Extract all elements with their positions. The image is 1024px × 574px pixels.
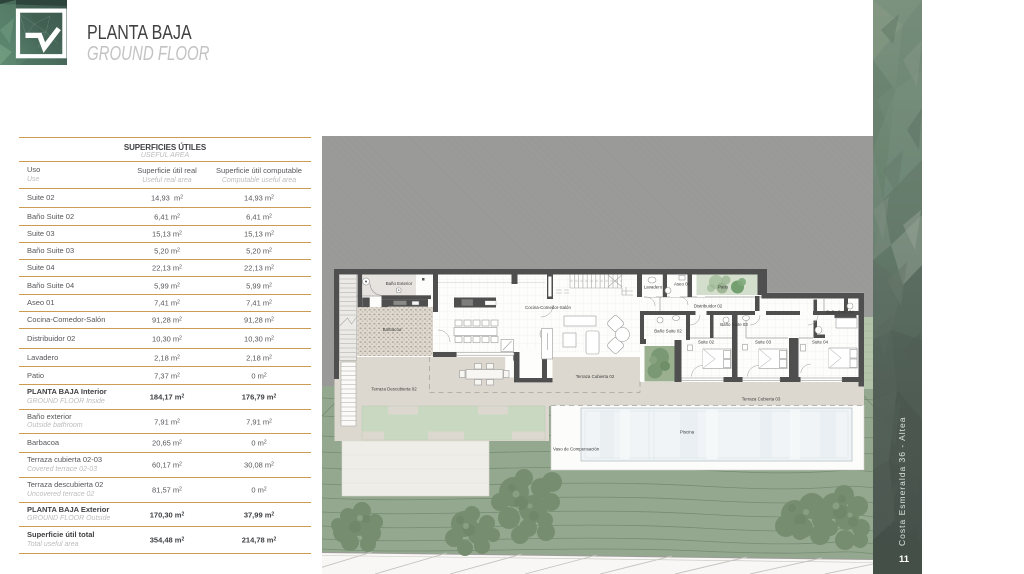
svg-text:Suite 02: Suite 02 [698, 340, 715, 345]
svg-text:Barbacoa: Barbacoa [383, 327, 402, 332]
svg-text:Terraza Cubierta 03: Terraza Cubierta 03 [742, 397, 781, 402]
svg-text:Cocina-Comedor-Salón: Cocina-Comedor-Salón [525, 305, 571, 310]
svg-text:Baño Exterior: Baño Exterior [386, 281, 413, 286]
svg-text:Suite 03: Suite 03 [755, 340, 772, 345]
svg-text:Suite 04: Suite 04 [812, 340, 829, 345]
svg-text:Vaso de Compensación: Vaso de Compensación [553, 447, 600, 452]
svg-text:Baño Suite 02: Baño Suite 02 [654, 329, 682, 334]
svg-text:Terraza Descubierta 02: Terraza Descubierta 02 [371, 387, 417, 392]
svg-text:Aseo 01: Aseo 01 [674, 282, 691, 287]
svg-text:Terraza Cubierta 02: Terraza Cubierta 02 [576, 374, 615, 379]
svg-text:Baño Suite 03: Baño Suite 03 [720, 322, 748, 327]
svg-text:Distribuidor 02: Distribuidor 02 [694, 304, 723, 309]
svg-text:Piscina: Piscina [680, 430, 695, 435]
svg-text:Baño Suite 04: Baño Suite 04 [826, 310, 854, 315]
svg-text:Lavadero: Lavadero [644, 285, 663, 290]
svg-text:Patio: Patio [718, 285, 729, 290]
